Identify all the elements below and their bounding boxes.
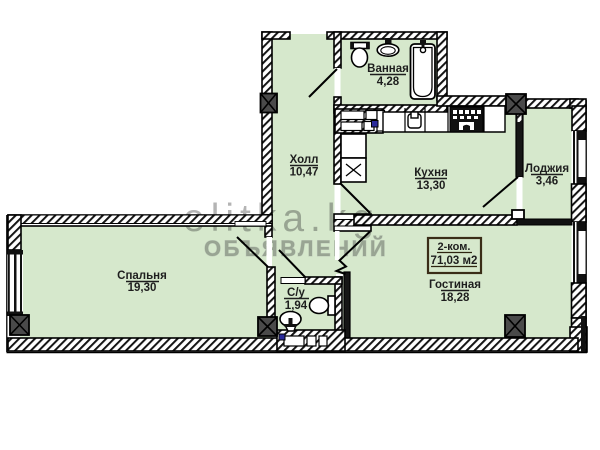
svg-text:Спальня: Спальня [117,270,167,282]
svg-text:19,30: 19,30 [128,282,157,294]
svg-text:18,28: 18,28 [441,292,470,304]
svg-text:13,30: 13,30 [417,180,446,192]
svg-text:Гостиная: Гостиная [429,279,481,291]
svg-text:4,28: 4,28 [377,76,400,88]
svg-text:2-ком.: 2-ком. [438,241,471,253]
svg-text:71,03 м2: 71,03 м2 [431,255,478,267]
svg-text:3,46: 3,46 [536,176,558,188]
svg-text:10,47: 10,47 [290,167,319,179]
svg-text:Лоджия: Лоджия [525,163,569,175]
svg-text:Кухня: Кухня [414,167,448,179]
svg-text:Ванная: Ванная [367,63,409,75]
svg-text:1,94: 1,94 [285,300,308,312]
svg-text:Холл: Холл [290,154,319,166]
svg-text:С/у: С/у [287,287,306,299]
